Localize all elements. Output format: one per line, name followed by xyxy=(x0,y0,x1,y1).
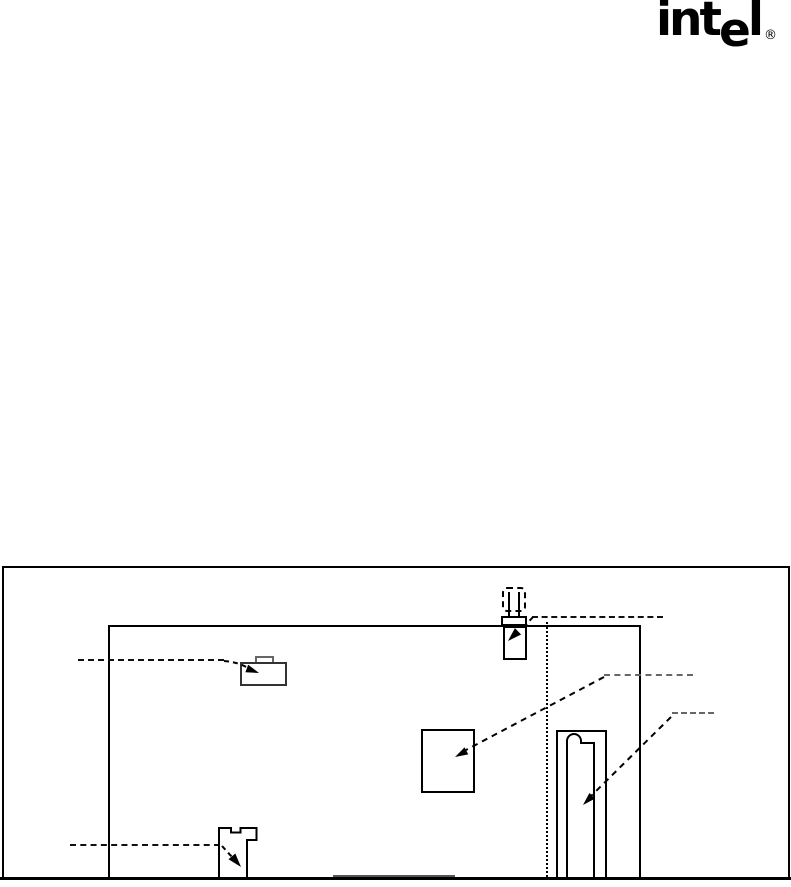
keyed-slot-inner-outline xyxy=(567,734,594,877)
leader-diagonal-middle-chip xyxy=(464,677,604,751)
notched-connector-outline xyxy=(219,828,257,877)
leader-diagonal-keyed-slot xyxy=(590,717,671,797)
diagram-linework xyxy=(0,0,791,887)
arrowhead-top-connector-icon xyxy=(508,628,521,641)
document-page: intel® xyxy=(0,0,791,887)
leader-diagonal-notched-connector xyxy=(222,846,232,857)
arrowhead-small-chip-icon xyxy=(245,665,259,673)
figure-bottom-rule xyxy=(0,877,791,880)
leader-diagonal-small-chip xyxy=(224,661,248,668)
leader-diagonal-top-connector xyxy=(523,617,533,628)
